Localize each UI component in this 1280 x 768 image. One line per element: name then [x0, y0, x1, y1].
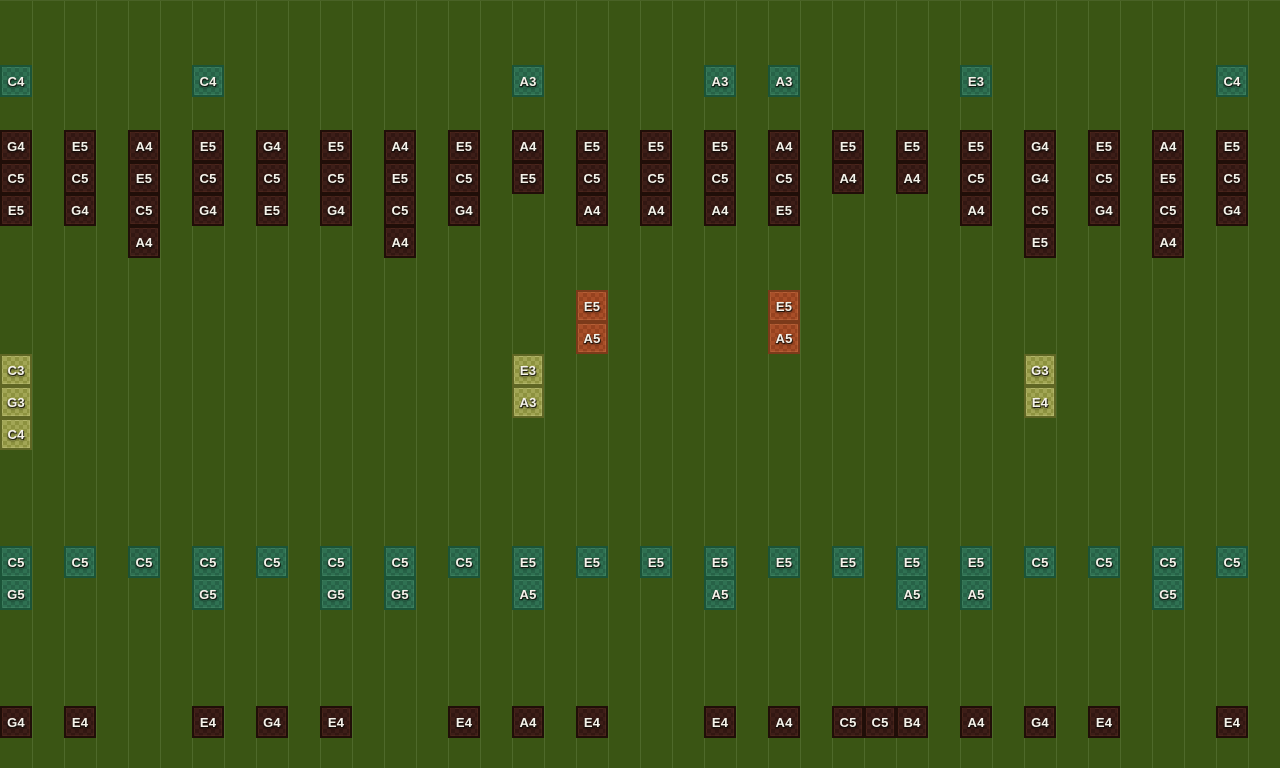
note-label: A4: [967, 203, 984, 218]
note-label: E5: [136, 171, 152, 186]
note-label: E5: [776, 299, 792, 314]
note-block-c5[interactable]: C5: [0, 546, 32, 578]
note-label: C5: [1095, 555, 1112, 570]
note-block-e5[interactable]: E5: [256, 194, 288, 226]
note-block-a4[interactable]: A4: [768, 706, 800, 738]
note-block-e4[interactable]: E4: [64, 706, 96, 738]
note-block-e5[interactable]: E5: [512, 546, 544, 578]
note-block-g4[interactable]: G4: [1024, 162, 1056, 194]
note-label: C5: [775, 171, 792, 186]
note-label: E5: [968, 139, 984, 154]
note-block-c5[interactable]: C5: [64, 162, 96, 194]
note-label: C5: [327, 171, 344, 186]
note-block-e5[interactable]: E5: [512, 162, 544, 194]
note-block-e4[interactable]: E4: [1088, 706, 1120, 738]
note-block-c5[interactable]: C5: [384, 546, 416, 578]
note-label: A4: [903, 171, 920, 186]
note-block-a5[interactable]: A5: [512, 578, 544, 610]
note-label: G4: [327, 203, 345, 218]
note-block-e5[interactable]: E5: [704, 130, 736, 162]
note-block-g4[interactable]: G4: [0, 130, 32, 162]
note-block-a4[interactable]: A4: [512, 130, 544, 162]
grid-line: [1216, 1, 1217, 768]
note-label: A4: [391, 139, 408, 154]
note-label: C5: [871, 715, 888, 730]
note-block-c5[interactable]: C5: [576, 162, 608, 194]
note-label: G4: [71, 203, 89, 218]
note-label: C3: [7, 363, 24, 378]
grid-line: [576, 1, 577, 768]
note-label: E5: [968, 555, 984, 570]
note-block-e5[interactable]: E5: [0, 194, 32, 226]
note-block-c5[interactable]: C5: [320, 162, 352, 194]
note-label: G5: [327, 587, 345, 602]
note-block-g4[interactable]: G4: [0, 706, 32, 738]
grid-line: [928, 1, 929, 768]
note-block-a5[interactable]: A5: [704, 578, 736, 610]
note-block-c5[interactable]: C5: [192, 546, 224, 578]
note-block-c5[interactable]: C5: [960, 162, 992, 194]
note-label: A4: [135, 139, 152, 154]
note-label: E5: [840, 555, 856, 570]
note-label: E5: [520, 171, 536, 186]
grid-line: [64, 1, 65, 768]
note-block-a4[interactable]: A4: [384, 226, 416, 258]
note-label: A5: [711, 587, 728, 602]
note-label: E4: [456, 715, 472, 730]
grid-line: [1248, 1, 1249, 768]
note-block-c4[interactable]: C4: [192, 65, 224, 97]
note-label: A4: [583, 203, 600, 218]
grid-line: [288, 1, 289, 768]
note-label: C5: [391, 203, 408, 218]
note-label: G4: [263, 715, 281, 730]
note-label: A4: [775, 139, 792, 154]
note-label: E5: [648, 555, 664, 570]
note-label: C5: [1095, 171, 1112, 186]
note-block-e5[interactable]: E5: [1088, 130, 1120, 162]
note-label: C5: [1223, 171, 1240, 186]
note-block-e5[interactable]: E5: [576, 130, 608, 162]
note-block-e5[interactable]: E5: [960, 546, 992, 578]
note-block-c5[interactable]: C5: [704, 162, 736, 194]
note-label: G3: [7, 395, 25, 410]
note-block-e5[interactable]: E5: [128, 162, 160, 194]
note-label: E4: [1224, 715, 1240, 730]
note-block-a3[interactable]: A3: [512, 386, 544, 418]
note-label: E5: [72, 139, 88, 154]
grid-line: [832, 1, 833, 768]
note-label: C5: [391, 555, 408, 570]
note-label: A4: [519, 715, 536, 730]
note-block-g4[interactable]: G4: [256, 130, 288, 162]
note-label: A4: [391, 235, 408, 250]
grid-line: [192, 1, 193, 768]
note-label: E3: [520, 363, 536, 378]
grid-line: [384, 1, 385, 768]
note-label: E5: [584, 299, 600, 314]
note-label: C5: [7, 171, 24, 186]
grid-line: [96, 1, 97, 768]
note-block-a4[interactable]: A4: [576, 194, 608, 226]
grid-line: [1120, 1, 1121, 768]
note-block-e5[interactable]: E5: [448, 130, 480, 162]
note-block-c5[interactable]: C5: [832, 706, 864, 738]
note-block-c5[interactable]: C5: [768, 162, 800, 194]
note-block-c5[interactable]: C5: [256, 546, 288, 578]
note-label: C5: [199, 555, 216, 570]
note-label: C5: [7, 555, 24, 570]
note-block-a4[interactable]: A4: [960, 706, 992, 738]
note-label: E5: [456, 139, 472, 154]
grid-line: [960, 1, 961, 768]
note-label: C5: [1223, 555, 1240, 570]
note-block-g4[interactable]: G4: [64, 194, 96, 226]
note-label: A4: [519, 139, 536, 154]
note-label: G4: [1031, 139, 1049, 154]
note-block-e4[interactable]: E4: [320, 706, 352, 738]
note-label: E5: [584, 555, 600, 570]
note-block-c5[interactable]: C5: [0, 162, 32, 194]
note-block-e5[interactable]: E5: [640, 546, 672, 578]
note-label: A4: [839, 171, 856, 186]
note-label: G4: [1031, 715, 1049, 730]
note-label: G4: [1095, 203, 1113, 218]
grid-line: [1184, 1, 1185, 768]
note-label: A5: [967, 587, 984, 602]
note-block-a3[interactable]: A3: [704, 65, 736, 97]
note-label: C4: [1223, 74, 1240, 89]
note-block-e5[interactable]: E5: [64, 130, 96, 162]
note-label: A3: [519, 395, 536, 410]
note-label: C5: [455, 171, 472, 186]
note-block-a3[interactable]: A3: [512, 65, 544, 97]
note-label: E4: [1096, 715, 1112, 730]
note-label: G4: [1031, 171, 1049, 186]
note-block-c5[interactable]: C5: [864, 706, 896, 738]
note-label: B4: [903, 715, 920, 730]
note-block-e4[interactable]: E4: [576, 706, 608, 738]
note-label: A3: [711, 74, 728, 89]
note-block-g5[interactable]: G5: [384, 578, 416, 610]
note-block-g5[interactable]: G5: [192, 578, 224, 610]
note-block-e5[interactable]: E5: [192, 130, 224, 162]
note-block-e3[interactable]: E3: [960, 65, 992, 97]
grid-line: [224, 1, 225, 768]
grid-line: [544, 1, 545, 768]
note-block-c5[interactable]: C5: [1216, 162, 1248, 194]
note-label: G4: [263, 139, 281, 154]
note-label: E5: [776, 203, 792, 218]
note-block-a5[interactable]: A5: [768, 322, 800, 354]
note-block-c5[interactable]: C5: [640, 162, 672, 194]
note-label: E5: [392, 171, 408, 186]
note-block-a5[interactable]: A5: [576, 322, 608, 354]
note-label: E5: [1032, 235, 1048, 250]
note-block-e5[interactable]: E5: [704, 546, 736, 578]
note-label: E4: [200, 715, 216, 730]
grid-line: [704, 1, 705, 768]
note-label: C5: [135, 203, 152, 218]
note-label: A4: [1159, 235, 1176, 250]
note-block-c5[interactable]: C5: [192, 162, 224, 194]
note-label: G4: [1223, 203, 1241, 218]
note-label: E5: [1160, 171, 1176, 186]
note-block-a5[interactable]: A5: [960, 578, 992, 610]
grid-line: [1152, 1, 1153, 768]
grid-line: [672, 1, 673, 768]
note-label: A4: [647, 203, 664, 218]
note-block-b4[interactable]: B4: [896, 706, 928, 738]
grid-line: [160, 1, 161, 768]
note-label: E4: [1032, 395, 1048, 410]
note-label: G5: [199, 587, 217, 602]
note-label: G5: [7, 587, 25, 602]
note-block-a4[interactable]: A4: [768, 130, 800, 162]
note-block-e5[interactable]: E5: [832, 546, 864, 578]
note-block-e4[interactable]: E4: [704, 706, 736, 738]
note-block-a4[interactable]: A4: [640, 194, 672, 226]
note-block-g4[interactable]: G4: [1216, 194, 1248, 226]
note-label: C5: [71, 171, 88, 186]
note-label: E3: [968, 74, 984, 89]
note-block-e5[interactable]: E5: [1152, 162, 1184, 194]
grid-line: [416, 1, 417, 768]
note-label: C5: [263, 555, 280, 570]
note-label: E5: [904, 139, 920, 154]
note-block-g4[interactable]: G4: [192, 194, 224, 226]
note-block-g4[interactable]: G4: [448, 194, 480, 226]
note-block-c4[interactable]: C4: [0, 65, 32, 97]
note-label: E5: [200, 139, 216, 154]
note-label: C5: [455, 555, 472, 570]
note-label: C5: [1159, 555, 1176, 570]
note-block-g3[interactable]: G3: [1024, 354, 1056, 386]
note-block-c3[interactable]: C3: [0, 354, 32, 386]
note-label: A5: [519, 587, 536, 602]
note-label: C5: [1159, 203, 1176, 218]
note-block-g4[interactable]: G4: [1088, 194, 1120, 226]
note-block-e5[interactable]: E5: [960, 130, 992, 162]
note-block-c5[interactable]: C5: [128, 194, 160, 226]
note-block-a4[interactable]: A4: [512, 706, 544, 738]
note-block-g3[interactable]: G3: [0, 386, 32, 418]
note-label: A4: [135, 235, 152, 250]
note-block-a4[interactable]: A4: [128, 226, 160, 258]
note-label: C5: [967, 171, 984, 186]
note-block-c5[interactable]: C5: [1216, 546, 1248, 578]
note-block-c5[interactable]: C5: [1088, 162, 1120, 194]
grid-line: [1056, 1, 1057, 768]
note-block-e5[interactable]: E5: [896, 130, 928, 162]
grid-line: [352, 1, 353, 768]
note-block-a4[interactable]: A4: [1152, 130, 1184, 162]
note-label: C5: [327, 555, 344, 570]
grid-line: [800, 1, 801, 768]
note-block-a4[interactable]: A4: [960, 194, 992, 226]
note-block-c5[interactable]: C5: [128, 546, 160, 578]
note-block-g4[interactable]: G4: [1024, 706, 1056, 738]
grid-line: [608, 1, 609, 768]
note-block-e4[interactable]: E4: [1216, 706, 1248, 738]
note-label: G5: [391, 587, 409, 602]
note-label: E5: [776, 555, 792, 570]
note-label: A5: [903, 587, 920, 602]
grid-line: [448, 1, 449, 768]
note-label: E5: [712, 139, 728, 154]
note-block-c5[interactable]: C5: [1152, 194, 1184, 226]
note-label: E4: [584, 715, 600, 730]
note-block-g4[interactable]: G4: [320, 194, 352, 226]
note-label: A4: [775, 715, 792, 730]
grid-line: [736, 1, 737, 768]
note-block-e5[interactable]: E5: [768, 290, 800, 322]
note-label: C5: [1031, 555, 1048, 570]
note-label: E5: [648, 139, 664, 154]
note-label: E5: [712, 555, 728, 570]
note-block-c5[interactable]: C5: [320, 546, 352, 578]
note-block-g5[interactable]: G5: [320, 578, 352, 610]
note-label: A3: [519, 74, 536, 89]
note-block-e4[interactable]: E4: [448, 706, 480, 738]
note-block-e5[interactable]: E5: [1216, 130, 1248, 162]
note-label: E5: [840, 139, 856, 154]
grid-line: [480, 1, 481, 768]
note-block-c5[interactable]: C5: [64, 546, 96, 578]
grid-line: [256, 1, 257, 768]
note-block-g4[interactable]: G4: [256, 706, 288, 738]
note-block-e5[interactable]: E5: [1024, 226, 1056, 258]
note-label: E5: [328, 139, 344, 154]
note-label: C4: [7, 427, 24, 442]
note-block-c5[interactable]: C5: [448, 162, 480, 194]
note-block-a4[interactable]: A4: [384, 130, 416, 162]
grid-line: [896, 1, 897, 768]
note-label: E4: [328, 715, 344, 730]
grid-line: [32, 1, 33, 768]
note-label: A4: [1159, 139, 1176, 154]
note-label: E5: [1224, 139, 1240, 154]
note-block-e4[interactable]: E4: [192, 706, 224, 738]
note-block-e5[interactable]: E5: [576, 546, 608, 578]
note-label: G3: [1031, 363, 1049, 378]
note-label: E5: [904, 555, 920, 570]
note-label: C5: [583, 171, 600, 186]
note-block-e3[interactable]: E3: [512, 354, 544, 386]
note-label: A3: [775, 74, 792, 89]
note-block-e5[interactable]: E5: [832, 130, 864, 162]
grid-line: [992, 1, 993, 768]
note-label: A5: [583, 331, 600, 346]
note-block-a3[interactable]: A3: [768, 65, 800, 97]
note-block-c4[interactable]: C4: [0, 418, 32, 450]
note-label: C5: [711, 171, 728, 186]
grid-line: [640, 1, 641, 768]
note-label: G4: [455, 203, 473, 218]
grid-line: [1088, 1, 1089, 768]
note-label: A4: [967, 715, 984, 730]
note-label: G4: [199, 203, 217, 218]
note-block-e4[interactable]: E4: [1024, 386, 1056, 418]
note-label: E5: [584, 139, 600, 154]
note-block-a4[interactable]: A4: [704, 194, 736, 226]
note-label: E5: [1096, 139, 1112, 154]
note-block-e5[interactable]: E5: [640, 130, 672, 162]
note-block-c5[interactable]: C5: [448, 546, 480, 578]
note-block-a4[interactable]: A4: [1152, 226, 1184, 258]
note-label: E4: [712, 715, 728, 730]
note-label: C5: [263, 171, 280, 186]
note-block-e5[interactable]: E5: [768, 194, 800, 226]
note-block-a4[interactable]: A4: [896, 162, 928, 194]
note-label: C4: [199, 74, 216, 89]
note-block-a4[interactable]: A4: [128, 130, 160, 162]
note-block-c4[interactable]: C4: [1216, 65, 1248, 97]
note-label: E5: [520, 555, 536, 570]
note-label: G5: [1159, 587, 1177, 602]
note-block-e5[interactable]: E5: [384, 162, 416, 194]
note-block-g4[interactable]: G4: [1024, 130, 1056, 162]
note-block-c5[interactable]: C5: [1088, 546, 1120, 578]
note-label: C5: [1031, 203, 1048, 218]
note-label: E5: [8, 203, 24, 218]
note-block-c5[interactable]: C5: [1152, 546, 1184, 578]
grid-line: [320, 1, 321, 768]
note-label: G4: [7, 139, 25, 154]
note-label: C5: [199, 171, 216, 186]
note-label: C5: [71, 555, 88, 570]
note-label: E5: [264, 203, 280, 218]
sequencer-grid[interactable]: C4C4A3A3A3E3C4G4C5E5E5C5G4A4E5C5A4E5C5G4…: [0, 0, 1280, 768]
note-label: A5: [775, 331, 792, 346]
note-block-e5[interactable]: E5: [320, 130, 352, 162]
note-label: C5: [839, 715, 856, 730]
note-block-c5[interactable]: C5: [384, 194, 416, 226]
note-block-e5[interactable]: E5: [896, 546, 928, 578]
note-block-g5[interactable]: G5: [0, 578, 32, 610]
note-block-c5[interactable]: C5: [1024, 546, 1056, 578]
note-label: C4: [7, 74, 24, 89]
note-block-e5[interactable]: E5: [768, 546, 800, 578]
grid-line: [864, 1, 865, 768]
note-label: C5: [647, 171, 664, 186]
grid-line: [768, 1, 769, 768]
note-label: E4: [72, 715, 88, 730]
note-block-a5[interactable]: A5: [896, 578, 928, 610]
note-block-a4[interactable]: A4: [832, 162, 864, 194]
note-label: G4: [7, 715, 25, 730]
note-block-g5[interactable]: G5: [1152, 578, 1184, 610]
grid-line: [128, 1, 129, 768]
note-label: C5: [135, 555, 152, 570]
note-label: A4: [711, 203, 728, 218]
note-block-c5[interactable]: C5: [1024, 194, 1056, 226]
note-block-e5[interactable]: E5: [576, 290, 608, 322]
note-block-c5[interactable]: C5: [256, 162, 288, 194]
